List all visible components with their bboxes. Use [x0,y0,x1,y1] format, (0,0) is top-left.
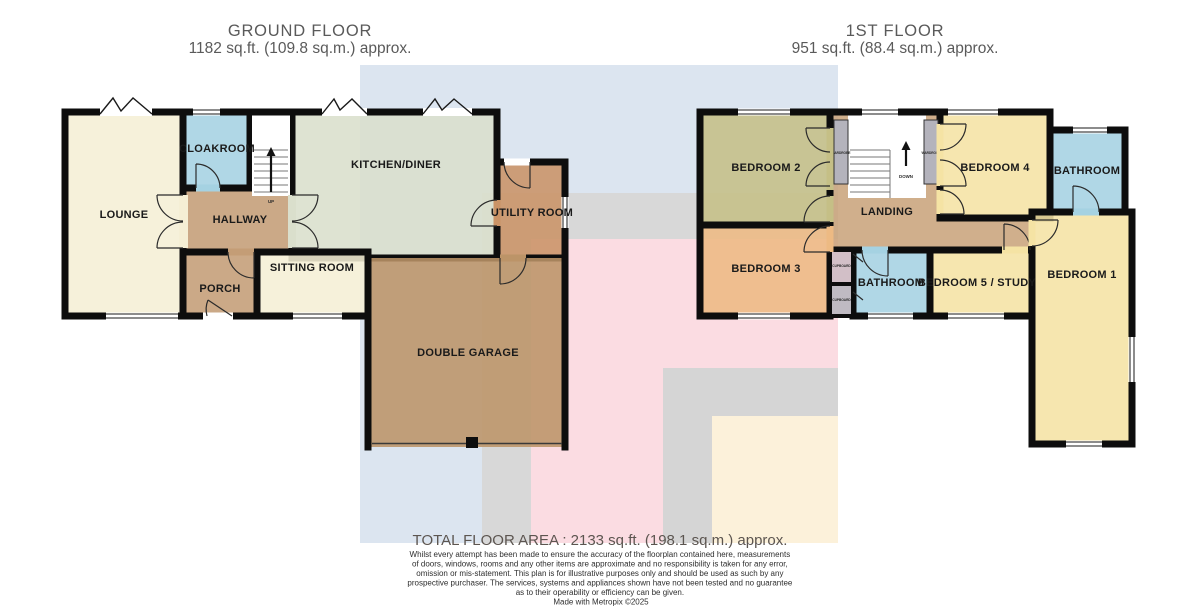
window-bathroom-bottom [868,313,913,320]
disclaimer-line: as to their operability or efficiency ca… [516,588,684,597]
label-bedroom5: BEDROOM 5 / STUDY [918,277,1037,289]
label-bedroom4: BEDROOM 4 [960,162,1030,174]
window-bedroom3-bottom [738,313,790,320]
credit-line: Made with Metropix ©2025 [553,598,649,607]
floorplan-page: LOUNGE CLOAKROOM HALLWAY PORCH SITTING R… [0,0,1200,608]
window-bedroom1-right [1129,337,1136,382]
label-bedroom2: BEDROOM 2 [731,162,800,174]
label-garage: DOUBLE GARAGE [417,347,519,359]
label-down: DOWN [899,174,913,179]
disclaimer-line: Whilst every attempt has been made to en… [410,550,791,559]
label-utility: UTILITY ROOM [491,207,573,219]
label-lounge: LOUNGE [100,209,149,221]
label-wardrobe-left: WARDROBE [832,151,851,155]
label-hallway: HALLWAY [213,214,268,226]
stairs-top-wall [246,109,294,116]
disclaimer-line: of doors, windows, rooms and any other i… [412,560,788,569]
label-sitting: SITTING ROOM [270,262,354,274]
window-bedroom5-bottom [948,313,1004,320]
label-porch: PORCH [199,283,240,295]
label-up: UP [268,199,274,204]
window-bedroom4-top [948,109,998,116]
first-floor-title: 1ST FLOOR [846,22,945,40]
label-cupboard-upper: CUPBOARD [832,264,851,268]
total-floor-area: TOTAL FLOOR AREA : 2133 sq.ft. (198.1 sq… [413,532,788,549]
label-bedroom1: BEDROOM 1 [1047,269,1116,281]
garage-right-wall [562,255,569,451]
garage-door-pillar [466,437,478,448]
window-lounge-bottom [106,313,178,320]
ground-floor-area: 1182 sq.ft. (109.8 sq.m.) approx. [189,40,412,57]
garage-left-wall [365,255,372,451]
bay-window-lounge [100,98,152,116]
label-bathroom-top: BATHROOM [1054,165,1120,177]
window-stairs-top [862,109,898,116]
window-bedroom1-bottom [1066,441,1102,448]
disclaimer-line: prospective purchaser. The services, sys… [407,579,793,588]
watermark-cream-block [712,416,838,543]
window-sitting-bottom [293,313,342,320]
label-bedroom3: BEDROOM 3 [731,263,800,275]
ground-floor-title: GROUND FLOOR [228,22,372,40]
window-bathroom-top [1073,127,1107,134]
window-bedroom2-top [738,109,790,116]
label-bathroom: BATHROOM [858,277,924,289]
ground-floor-plan: LOUNGE CLOAKROOM HALLWAY PORCH SITTING R… [65,98,573,451]
label-landing: LANDING [861,206,913,218]
window-cloakroom [193,109,220,116]
room-bedroom1 [1032,212,1132,444]
disclaimer-line: omission or mis-statement. This plan is … [416,569,783,578]
label-cupboard-lower: CUPBOARD [832,298,851,302]
disclaimer: Whilst every attempt has been made to en… [407,550,794,607]
floorplan-canvas: LOUNGE CLOAKROOM HALLWAY PORCH SITTING R… [0,0,1200,608]
label-kitchen: KITCHEN/DINER [351,159,441,171]
first-floor-area: 951 sq.ft. (88.4 sq.m.) approx. [792,40,999,57]
label-cloakroom: CLOAKROOM [179,143,255,155]
room-kitchen-diner [292,112,497,258]
first-stairs: DOWN [848,116,926,199]
